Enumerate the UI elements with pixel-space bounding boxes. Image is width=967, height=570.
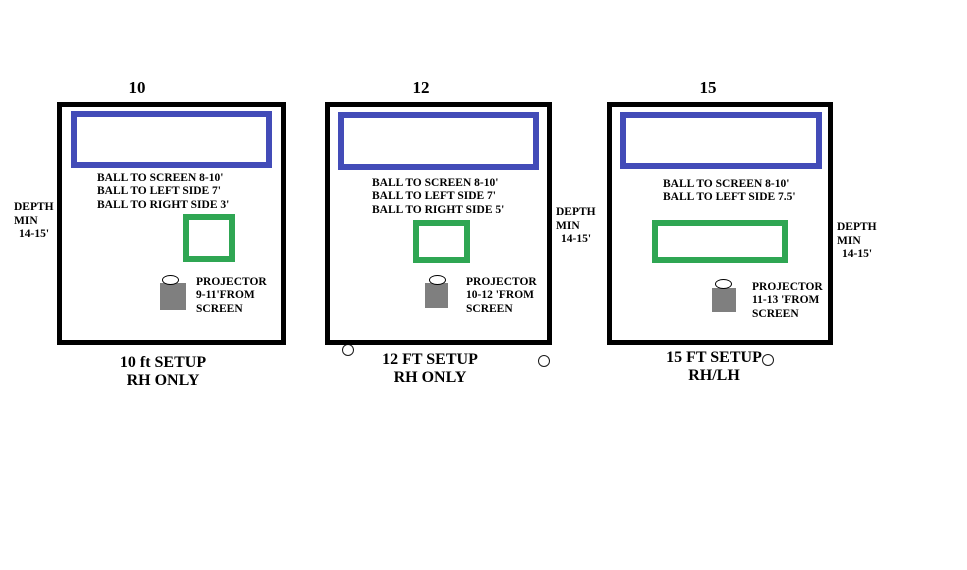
setup-caption-line1: 10 ft SETUP <box>83 354 243 372</box>
room-width-label-12: 12 <box>381 78 461 98</box>
depth-min-note-12ft: DEPTH MIN 14-15' <box>556 206 596 247</box>
min-word: MIN <box>556 220 596 234</box>
setup-caption-line1: 15 FT SETUP <box>634 349 794 367</box>
projector-distance-notes-15ft: PROJECTOR 11-13 'FROM SCREEN <box>752 281 823 321</box>
ball-to-right-note: BALL TO RIGHT SIDE 3' <box>97 199 229 212</box>
room-outline-10ft: BALL TO SCREEN 8-10' BALL TO LEFT SIDE 7… <box>57 102 286 345</box>
projector-label: PROJECTOR <box>466 276 537 289</box>
projector-distance: 11-13 'FROM <box>752 294 823 307</box>
projector-lens-icon <box>162 275 179 285</box>
projector-screen-word: SCREEN <box>196 303 267 316</box>
depth-min-note-10ft: DEPTH MIN 14-15' <box>14 201 54 242</box>
min-word: MIN <box>837 235 877 249</box>
ball-to-left-note: BALL TO LEFT SIDE 7' <box>372 190 504 203</box>
projector-distance: 10-12 'FROM <box>466 289 537 302</box>
room-outline-12ft: BALL TO SCREEN 8-10' BALL TO LEFT SIDE 7… <box>325 102 552 345</box>
ball-to-screen-note: BALL TO SCREEN 8-10' <box>663 178 796 191</box>
room-width-label-10: 10 <box>97 78 177 98</box>
room-width-label-15: 15 <box>668 78 748 98</box>
ball-to-left-note: BALL TO LEFT SIDE 7.5' <box>663 191 796 204</box>
projector-label: PROJECTOR <box>196 276 267 289</box>
projector-lens-icon <box>715 279 732 289</box>
depth-value: 14-15' <box>14 228 54 242</box>
ball-to-left-note: BALL TO LEFT SIDE 7' <box>97 185 229 198</box>
impact-screen-10ft <box>71 111 272 168</box>
projector-distance-notes-10ft: PROJECTOR 9-11'FROM SCREEN <box>196 276 267 316</box>
golf-simulator-setup-diagrams: 10 BALL TO SCREEN 8-10' BALL TO LEFT SID… <box>0 0 967 570</box>
setup-caption-15ft: 15 FT SETUP RH/LH <box>634 349 794 384</box>
ball-distance-notes-15ft: BALL TO SCREEN 8-10' BALL TO LEFT SIDE 7… <box>663 178 796 205</box>
depth-word: DEPTH <box>14 201 54 215</box>
depth-value: 14-15' <box>556 233 596 247</box>
setup-caption-line2: RH/LH <box>634 367 794 385</box>
setup-caption-line2: RH ONLY <box>83 372 243 390</box>
projector-screen-word: SCREEN <box>752 308 823 321</box>
projector-screen-word: SCREEN <box>466 303 537 316</box>
hitting-area-12ft <box>413 220 470 263</box>
depth-min-note-15ft: DEPTH MIN 14-15' <box>837 221 877 262</box>
setup-caption-line2: RH ONLY <box>350 369 510 387</box>
min-word: MIN <box>14 215 54 229</box>
hitting-area-10ft <box>183 214 235 262</box>
setup-caption-12ft: 12 FT SETUP RH ONLY <box>350 351 510 386</box>
ball-to-screen-note: BALL TO SCREEN 8-10' <box>97 172 229 185</box>
depth-value: 14-15' <box>837 248 877 262</box>
impact-screen-15ft <box>620 112 822 169</box>
projector-icon <box>160 283 186 310</box>
room-outline-15ft: BALL TO SCREEN 8-10' BALL TO LEFT SIDE 7… <box>607 102 833 345</box>
depth-word: DEPTH <box>556 206 596 220</box>
impact-screen-12ft <box>338 112 539 170</box>
setup-caption-10ft: 10 ft SETUP RH ONLY <box>83 354 243 389</box>
depth-word: DEPTH <box>837 221 877 235</box>
ball-to-screen-note: BALL TO SCREEN 8-10' <box>372 177 504 190</box>
projector-label: PROJECTOR <box>752 281 823 294</box>
setup-caption-line1: 12 FT SETUP <box>350 351 510 369</box>
ball-to-right-note: BALL TO RIGHT SIDE 5' <box>372 204 504 217</box>
projector-distance: 9-11'FROM <box>196 289 267 302</box>
projector-icon <box>712 288 736 312</box>
golf-ball-icon <box>538 355 550 367</box>
projector-icon <box>425 283 448 308</box>
ball-distance-notes-10ft: BALL TO SCREEN 8-10' BALL TO LEFT SIDE 7… <box>97 172 229 212</box>
hitting-area-15ft <box>652 220 788 263</box>
ball-distance-notes-12ft: BALL TO SCREEN 8-10' BALL TO LEFT SIDE 7… <box>372 177 504 217</box>
projector-distance-notes-12ft: PROJECTOR 10-12 'FROM SCREEN <box>466 276 537 316</box>
projector-lens-icon <box>429 275 446 285</box>
